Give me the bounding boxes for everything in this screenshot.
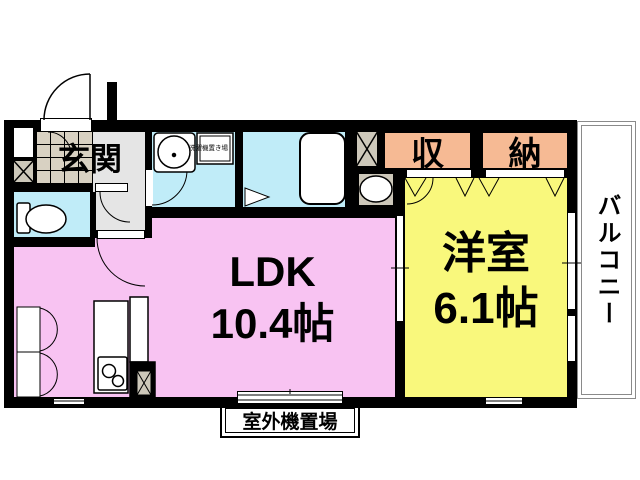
hall-upper-door-swing (100, 192, 130, 222)
western-room-door-swing (407, 178, 433, 204)
entrance-door-swing (44, 74, 90, 120)
bathtub-icon (300, 133, 345, 204)
ldk-closet (17, 307, 57, 397)
floor-plan: バルコニー 室外機置場 収 納 (0, 0, 640, 480)
bath-door-mark (245, 188, 269, 206)
kitchen-pipe-space (130, 362, 155, 400)
basin-oval-icon (360, 176, 392, 202)
closet-fold-marks (405, 178, 564, 196)
entrance-ps-x-icon (13, 160, 34, 183)
washbasin-icon (154, 133, 195, 172)
fixture-overlay (0, 0, 640, 480)
genkan-step-arc (48, 132, 71, 155)
pipe-space-x-icon (356, 131, 378, 167)
hall-ldk-door-swing (97, 238, 145, 286)
washroom-door-swing (152, 170, 187, 205)
washing-machine-space (197, 133, 233, 164)
toilet-fixture (17, 203, 66, 233)
